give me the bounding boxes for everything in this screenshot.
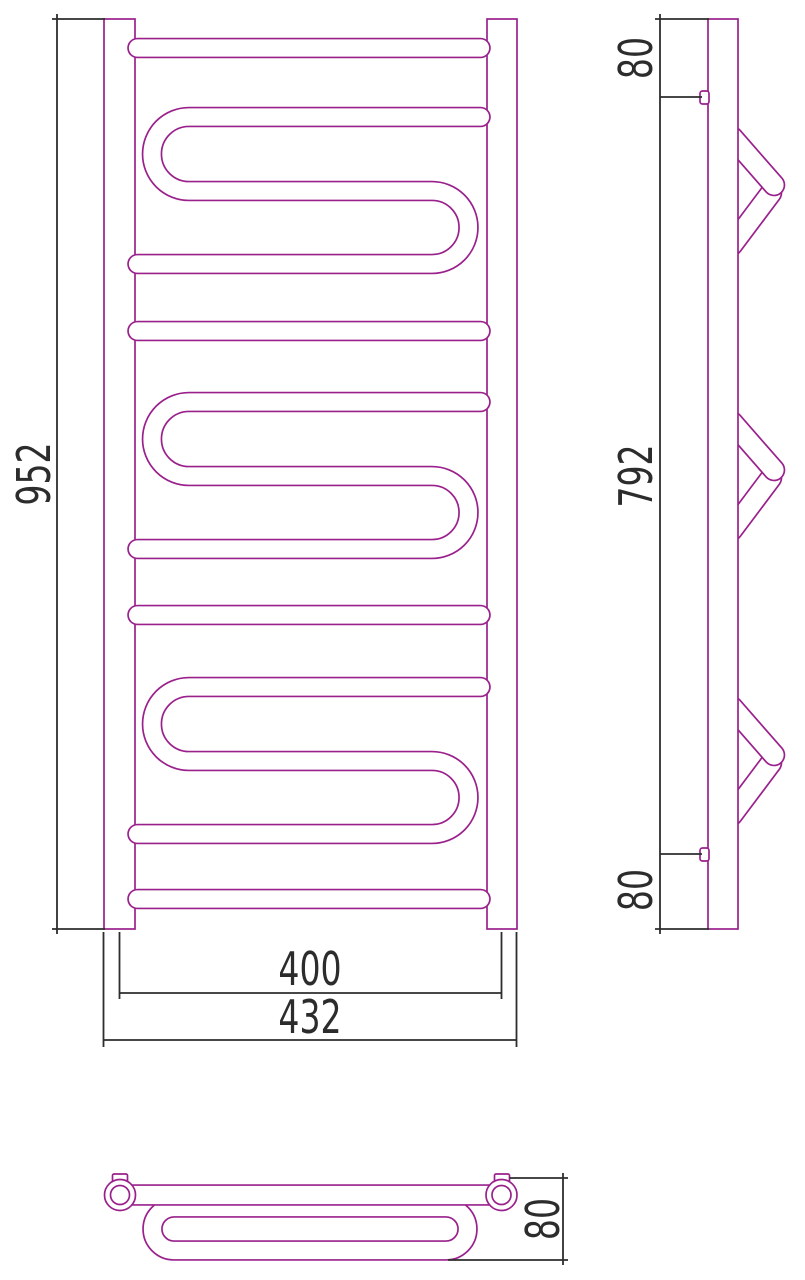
- drawing-sheet: 952 400 432 80 792 80 80: [0, 0, 805, 1280]
- serpentine-coil-2: [138, 402, 481, 549]
- side-rail: [708, 19, 738, 929]
- side-view: [700, 19, 774, 929]
- dim-label-depth: 80: [518, 1198, 571, 1240]
- dim-label-top-offset: 80: [611, 37, 664, 79]
- serpentine-coil-3: [138, 687, 481, 834]
- rail-section-right-inner: [492, 1186, 511, 1205]
- towel-rail-drawing: 952 400 432 80 792 80 80: [0, 0, 805, 1280]
- dim-label-height: 952: [9, 442, 62, 505]
- serpentine-coil-1: [138, 117, 481, 264]
- left-rail: [104, 19, 135, 929]
- dim-label-bracket-spacing: 792: [611, 444, 664, 507]
- dim-label-bottom-offset: 80: [611, 869, 664, 911]
- plan-view: [105, 1174, 518, 1251]
- rail-section-left-inner: [111, 1186, 130, 1205]
- front-view: [104, 19, 517, 929]
- coil-plan-outline: [153, 1208, 468, 1251]
- dim-label-overall-width: 432: [278, 992, 341, 1045]
- dim-label-axis-width: 400: [278, 944, 341, 997]
- right-rail: [487, 19, 517, 929]
